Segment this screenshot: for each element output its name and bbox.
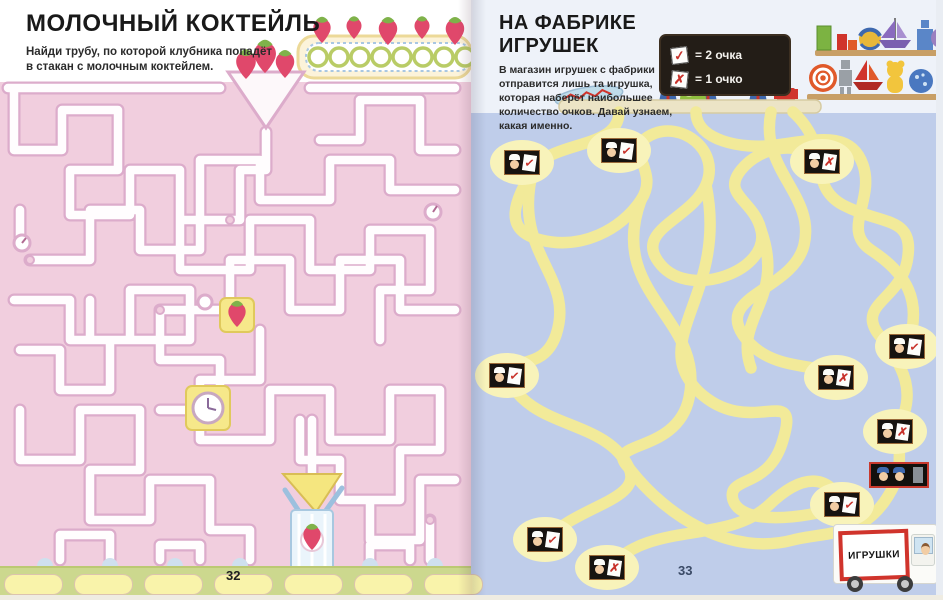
toy-face-icon [493,367,506,384]
score-card-mark: ✓ [907,338,922,356]
driver-icon [921,543,930,555]
page-title: МОЛОЧНЫЙ КОКТЕЙЛЬ [26,10,326,38]
score-tag[interactable]: ✓ [489,363,525,388]
toy-face-icon [593,559,606,576]
truck-wheel [897,576,913,592]
score-card-mark: ✓ [619,142,634,160]
score-tag[interactable]: ✗ [877,419,913,444]
score-tag[interactable]: ✓ [601,138,637,163]
right-page-toy-factory: НА ФАБРИКЕ ИГРУШЕК В магазин игрушек с ф… [471,0,943,600]
inspectors-box [869,462,929,488]
score-tag[interactable]: ✓ [824,492,860,517]
score-tag[interactable]: ✓ [504,150,540,175]
score-card-mark: ✓ [545,531,560,549]
score-card-mark: ✓ [522,154,537,172]
score-card-mark: ✗ [607,559,622,577]
glass-funnel [283,474,341,512]
score-tag[interactable]: ✓ [527,527,563,552]
page-instructions: Найди трубу, по которой клубника попадёт… [26,45,276,75]
score-card-mark: ✗ [895,423,910,441]
belt-segment [354,574,413,595]
belt-segment [74,574,133,595]
toy-face-icon [605,142,618,159]
page-number-right: 33 [678,563,692,578]
toy-face-icon [822,369,835,386]
score-card-mark: ✓ [507,367,522,385]
page-edge-bottom [0,595,943,600]
cab-window [914,537,933,554]
left-header: МОЛОЧНЫЙ КОКТЕЙЛЬ Найди трубу, по которо… [26,10,326,75]
score-tag[interactable]: ✗ [804,149,840,174]
belt-segment [214,574,273,595]
truck-wheel [847,576,863,592]
strawberry-tile-icon [220,298,254,332]
book-spread: МОЛОЧНЫЙ КОКТЕЙЛЬ Найди трубу, по которо… [0,0,943,600]
toy-face-icon [893,338,906,355]
sailor-inspector-icon [877,467,889,483]
score-tag[interactable]: ✗ [589,555,625,580]
score-tag[interactable]: ✗ [818,365,854,390]
toy-face-icon [881,423,894,440]
score-tag[interactable]: ✓ [889,334,925,359]
toy-face-icon [508,154,521,171]
score-card-mark: ✗ [836,369,851,387]
milkshake-glass[interactable] [283,474,342,570]
sailor-inspector-icon [893,467,905,483]
page-edge [936,0,943,600]
toy-face-icon [531,531,544,548]
belt-segment [4,574,63,595]
score-legend-board: ✓ = 2 очка ✗ = 1 очко [659,34,791,96]
toy-face-icon [828,496,841,513]
truck-sign: ИГРУШКИ [838,529,910,581]
score-card-mark: ✓ [842,496,857,514]
belt-segment [284,574,343,595]
arch-decoration [37,558,443,566]
truck-cab [911,534,935,566]
page-number-left: 32 [226,568,240,583]
cross-icon: ✗ [670,70,689,89]
legend-row-check: ✓ = 2 очка [671,43,789,67]
truck-sign-text: ИГРУШКИ [848,549,900,562]
toy-truck[interactable]: ИГРУШКИ [833,520,939,594]
belt-segment [144,574,203,595]
legend-row-cross: ✗ = 1 очко [671,67,789,91]
ladder-icon [913,467,923,483]
check-icon: ✓ [670,46,689,65]
page-instructions: В магазин игрушек с фабрики отправится л… [499,64,681,134]
clock-icon [186,386,230,430]
left-page-milkshake: МОЛОЧНЫЙ КОКТЕЙЛЬ Найди трубу, по которо… [0,0,471,600]
milkshake-pipe-maze[interactable] [0,0,471,600]
toy-face-icon [808,153,821,170]
score-card-mark: ✗ [822,153,837,171]
